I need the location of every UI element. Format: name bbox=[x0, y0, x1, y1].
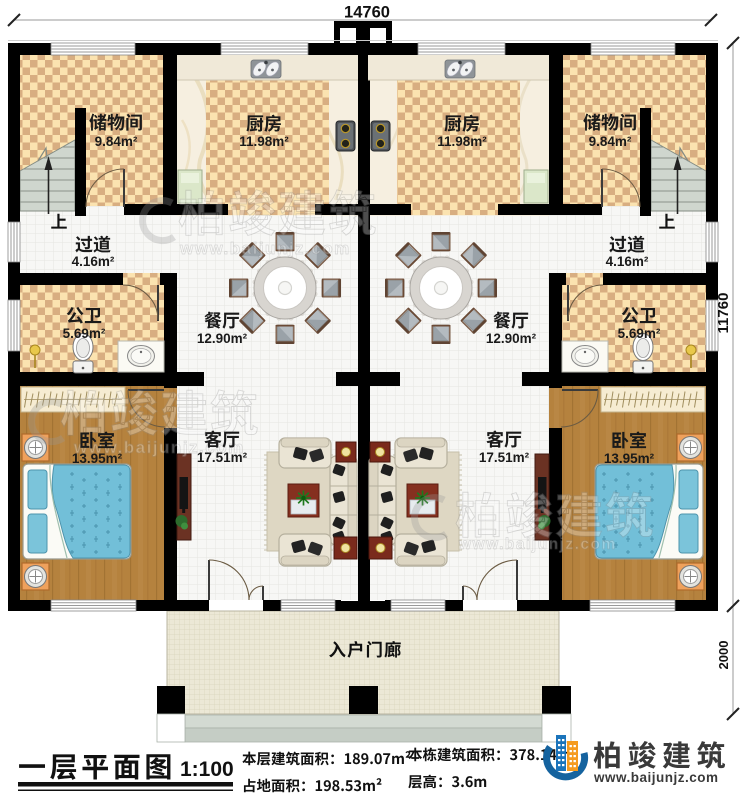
svg-text:2000: 2000 bbox=[716, 641, 731, 670]
svg-text:12.90m²: 12.90m² bbox=[486, 331, 537, 346]
svg-text:13.95m²: 13.95m² bbox=[604, 451, 655, 466]
svg-text:www.baijunjz.com: www.baijunjz.com bbox=[593, 770, 719, 785]
svg-text:4.16m²: 4.16m² bbox=[72, 254, 115, 269]
svg-text:5.69m²: 5.69m² bbox=[63, 326, 106, 341]
svg-text:4.16m²: 4.16m² bbox=[606, 254, 649, 269]
svg-text:14760: 14760 bbox=[344, 4, 390, 22]
svg-text:9.84m²: 9.84m² bbox=[589, 134, 632, 149]
svg-text:11.98m²: 11.98m² bbox=[437, 134, 487, 149]
svg-text:17.51m²: 17.51m² bbox=[479, 450, 530, 465]
svg-text:www.baijunjz.com: www.baijunjz.com bbox=[458, 536, 617, 553]
svg-text:9.84m²: 9.84m² bbox=[95, 134, 138, 149]
svg-text:5.69m²: 5.69m² bbox=[618, 326, 661, 341]
svg-text:11760: 11760 bbox=[715, 293, 732, 334]
svg-text:www.baijunjz.com: www.baijunjz.com bbox=[179, 239, 351, 258]
svg-text:13.95m²: 13.95m² bbox=[72, 451, 123, 466]
svg-text:1:100: 1:100 bbox=[180, 758, 234, 781]
svg-text:12.90m²: 12.90m² bbox=[197, 331, 248, 346]
svg-text:11.98m²: 11.98m² bbox=[239, 134, 289, 149]
svg-text:17.51m²: 17.51m² bbox=[197, 450, 248, 465]
